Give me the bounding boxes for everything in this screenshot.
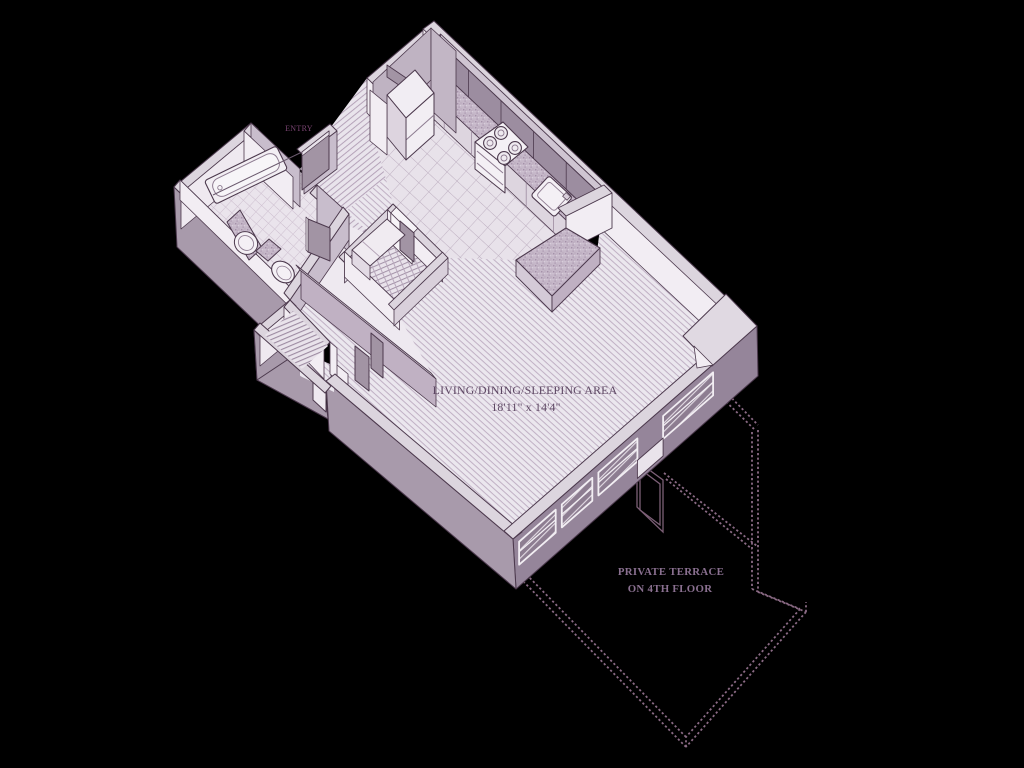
svg-text:ENTRY: ENTRY [285,124,313,133]
svg-text:PRIVATE TERRACE: PRIVATE TERRACE [618,566,724,578]
svg-text:LIVING/DINING/SLEEPING AREA: LIVING/DINING/SLEEPING AREA [433,383,618,397]
svg-text:ON 4TH FLOOR: ON 4TH FLOOR [628,583,713,595]
svg-text:18'11" x 14'4": 18'11" x 14'4" [491,400,560,414]
